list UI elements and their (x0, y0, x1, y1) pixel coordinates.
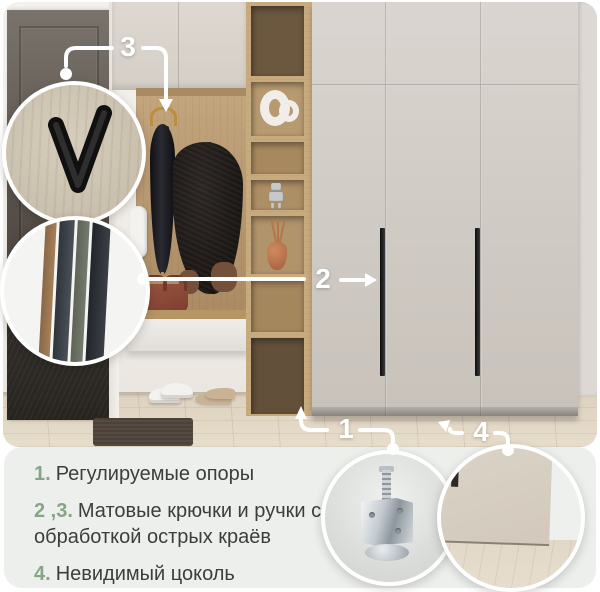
wardrobe-handle (380, 228, 385, 376)
callout-4: 4 (466, 416, 496, 448)
wardrobe (312, 2, 578, 416)
hook-closeup-inset (2, 81, 146, 225)
callout-3: 3 (113, 31, 143, 63)
handle-notch (451, 461, 459, 487)
open-shelf-unit (246, 2, 312, 416)
feature-number: 1. (34, 463, 51, 485)
v-hook-icon (6, 85, 142, 221)
wardrobe-handle (475, 228, 480, 376)
reed-diffuser (267, 242, 287, 270)
feature-number: 2 ,3. (34, 500, 73, 522)
product-infographic: { "callouts": { "c1": "1", "c2": "2", "c… (0, 0, 600, 592)
plinth-closeup-inset (437, 444, 585, 592)
handle-profiles-inset (0, 216, 150, 366)
feature-item-plinth: 4.Невидимый цоколь (34, 561, 388, 587)
feature-number: 4. (34, 563, 51, 585)
robot-figurine (271, 183, 281, 191)
callout-2: 2 (308, 263, 338, 295)
hanging-coat (173, 142, 243, 294)
callout-1: 1 (331, 413, 361, 445)
wardrobe-side-panel (578, 2, 597, 396)
adjustable-foot-icon (382, 470, 391, 502)
plinth-panel (437, 444, 553, 546)
doormat (93, 418, 193, 446)
